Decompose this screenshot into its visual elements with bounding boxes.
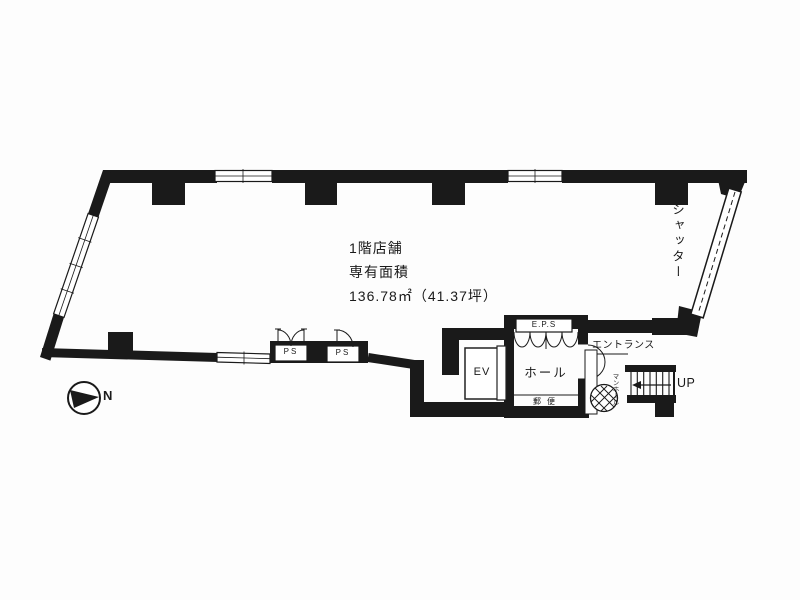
pillar: [655, 183, 688, 205]
elevator-label: EV: [465, 366, 499, 378]
shutter-label: シャッター: [668, 203, 687, 313]
shutter-icon: [691, 188, 741, 318]
stairs: [625, 365, 676, 417]
stairs-up-label: UP: [677, 376, 695, 390]
unit-area-value: 136.78㎡（41.37坪）: [349, 284, 498, 308]
entrance-label: エントランス: [592, 336, 655, 351]
unit-area-label: 専有面積: [349, 260, 498, 284]
north-label: N: [103, 388, 112, 403]
floor-plan-page: 1階店舗 専有面積 136.78㎡（41.37坪） シャッター エントランス ホ…: [0, 0, 800, 600]
hall-label: ホール: [514, 362, 578, 381]
top-wall: [103, 170, 747, 205]
manhole-label: マンホール: [609, 373, 619, 415]
ps-left-label: PS: [275, 347, 307, 356]
window-icon: [508, 169, 562, 183]
unit-info-block: 1階店舗 専有面積 136.78㎡（41.37坪）: [349, 236, 498, 308]
mailbox-label: 郵便: [514, 396, 580, 407]
pillar: [108, 332, 133, 355]
bifold-door-icon: [514, 332, 578, 349]
ps-right-label: PS: [327, 348, 359, 357]
pillar: [305, 183, 337, 205]
left-wall-window: [54, 214, 99, 318]
window-icon: [215, 169, 272, 183]
north-arrow-icon: [68, 382, 100, 414]
pillar: [152, 183, 185, 205]
unit-floor-use: 1階店舗: [349, 236, 498, 260]
pillar: [432, 183, 465, 205]
eps-label: E.P.S: [516, 320, 572, 329]
window-icon: [217, 352, 270, 365]
